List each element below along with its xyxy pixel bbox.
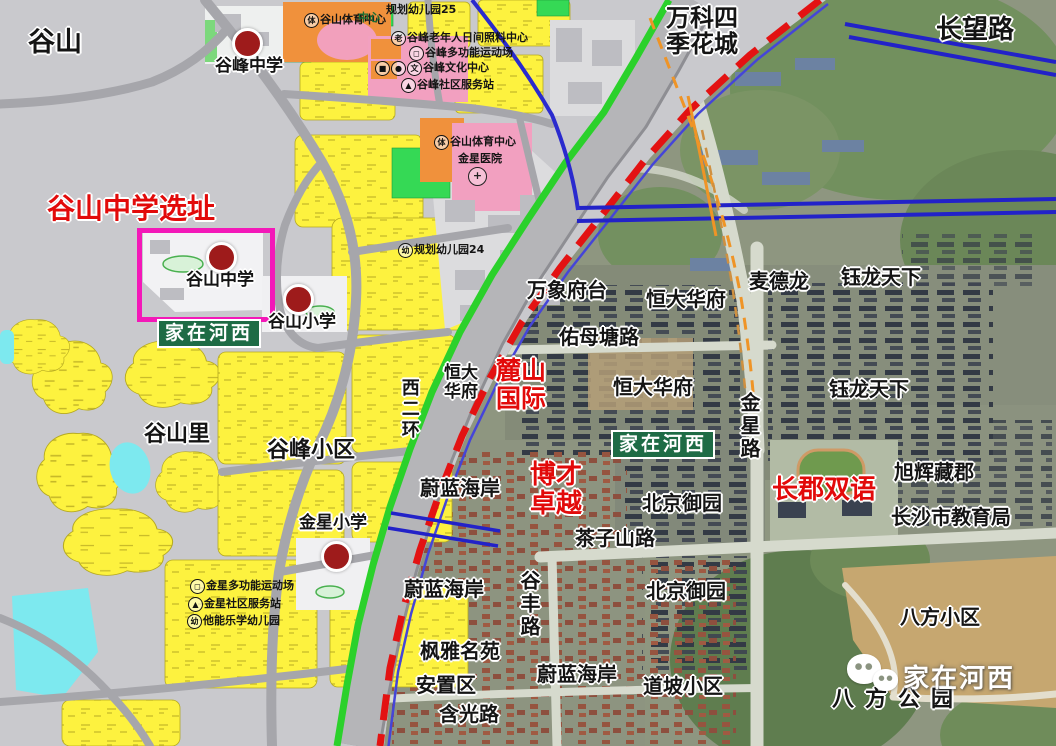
- watermark-badge-2: 家在河西: [611, 430, 715, 459]
- watermark: 家在河西: [845, 652, 1015, 700]
- badges-layer: 家在河西家在河西: [0, 0, 1056, 746]
- map: 谷山谷峰中学规划幼儿园25体谷山体育中心中心老谷峰老年人日间照料中心◻谷峰多功能…: [0, 0, 1056, 746]
- watermark-text: 家在河西: [903, 658, 1015, 695]
- wechat-icon: [845, 652, 899, 700]
- watermark-badge-1: 家在河西: [157, 319, 261, 348]
